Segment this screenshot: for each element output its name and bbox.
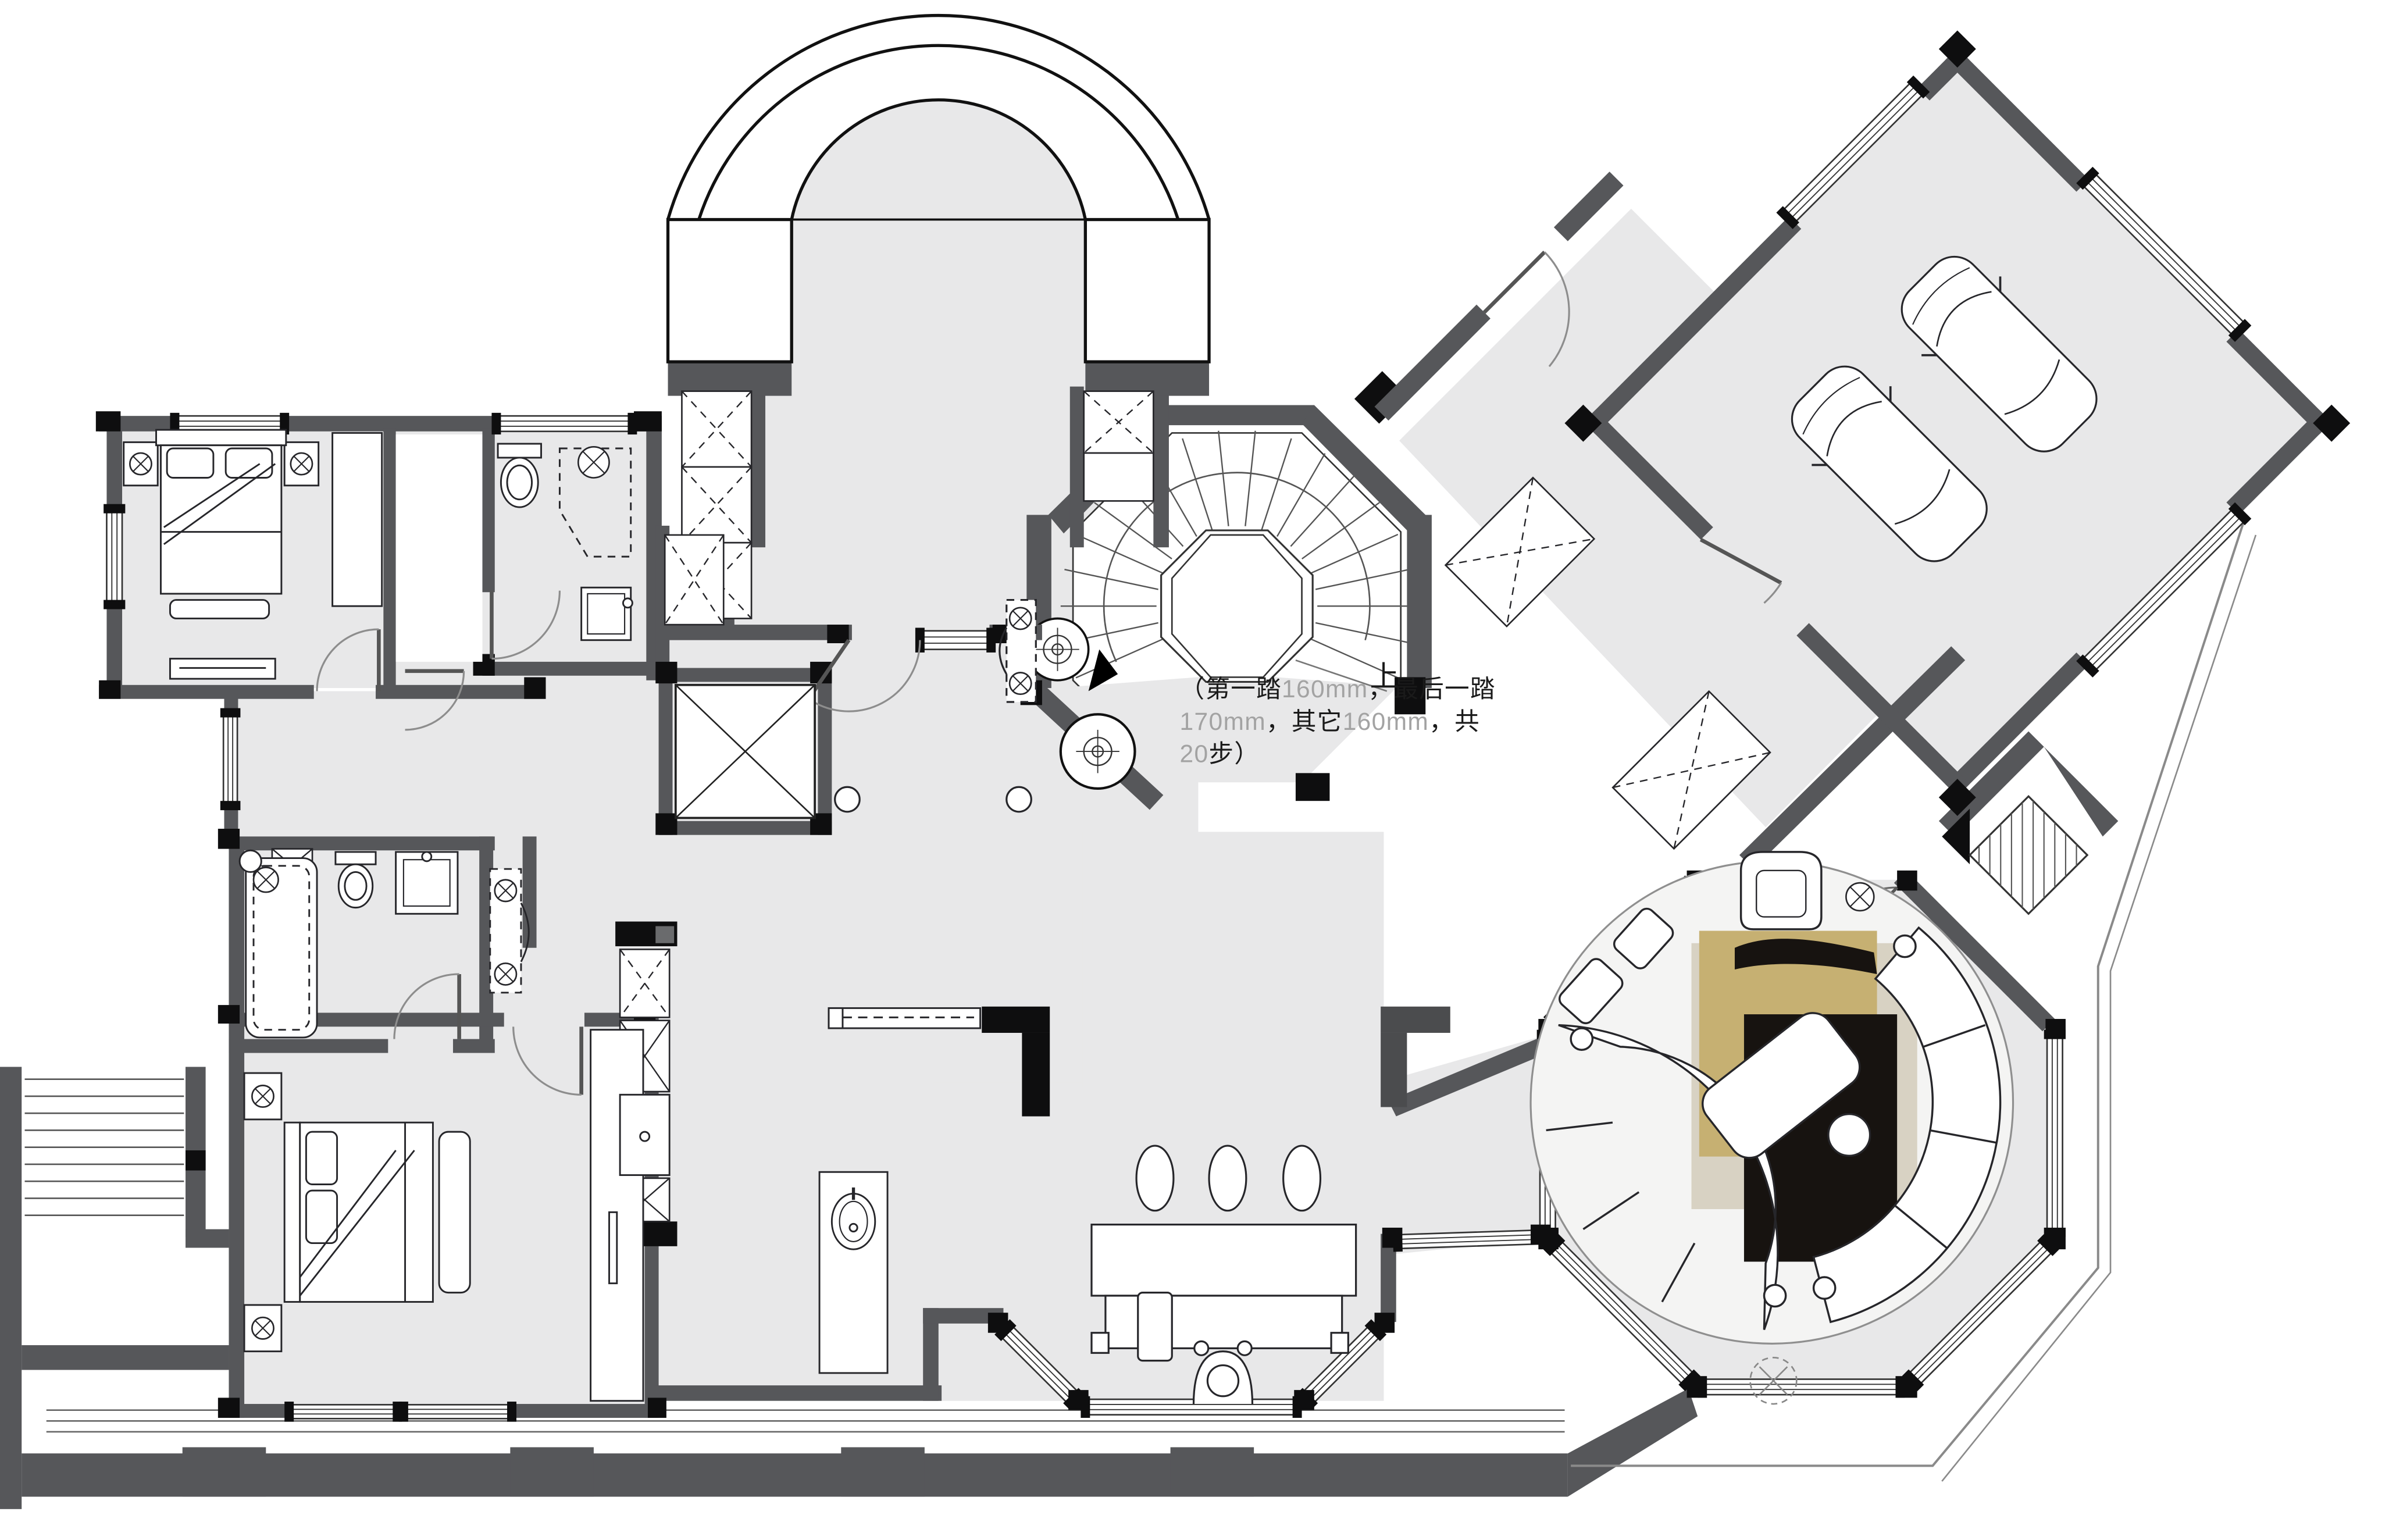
double-bed-headboard	[284, 1122, 300, 1302]
terrace-steps	[25, 1079, 184, 1215]
lamp-symbol	[495, 963, 516, 985]
pillow	[167, 448, 213, 478]
wall-post	[2045, 1229, 2066, 1250]
wardrobe	[333, 433, 382, 606]
stair-annotation: （第一踏160mm，最后一踏 170mm，其它160mm，共 20步）	[1180, 674, 1496, 771]
closet-box	[1084, 391, 1154, 453]
terrace-post	[841, 1447, 925, 1496]
wall-post	[1294, 1390, 1314, 1410]
terrace-post	[183, 1447, 266, 1496]
toilet-tank	[498, 444, 541, 458]
window	[104, 504, 125, 609]
pendant-lamp	[1283, 1146, 1321, 1211]
column	[1007, 787, 1032, 812]
closet-box	[682, 391, 751, 467]
wall-post	[2045, 1019, 2066, 1039]
toilet-tank	[336, 852, 376, 864]
faucet	[623, 598, 632, 608]
wall-post	[1531, 1225, 1551, 1245]
window	[399, 1402, 516, 1422]
closet-box	[620, 949, 669, 1017]
wall-post	[1897, 871, 1917, 891]
lamp-symbol	[495, 880, 516, 901]
window	[1698, 1376, 1905, 1398]
lamp-symbol	[1846, 883, 1874, 911]
window-jamb	[627, 413, 637, 434]
window	[1081, 1396, 1302, 1418]
lamp-symbol	[252, 1317, 273, 1339]
decor-ball	[1828, 1114, 1870, 1156]
pendant-lamp	[1136, 1146, 1174, 1211]
dressing-room-floor	[396, 434, 483, 662]
pendant-lamp	[1209, 1146, 1246, 1211]
faucet	[422, 852, 432, 861]
closet-box	[1084, 453, 1154, 501]
lamp-symbol	[1010, 608, 1031, 629]
terrace-post	[510, 1447, 594, 1496]
window-jamb	[104, 600, 125, 609]
double-bed-headboard	[156, 430, 286, 445]
window-jamb	[220, 708, 241, 718]
wall-post	[1382, 1228, 1403, 1248]
bed-bench	[170, 600, 269, 619]
window	[491, 413, 637, 434]
window	[915, 628, 996, 653]
lamp-symbol	[578, 447, 609, 477]
pillow	[226, 448, 272, 478]
window-jamb	[507, 1402, 516, 1422]
wardrobe-mirror	[609, 1212, 617, 1283]
lamp-symbol	[252, 1085, 273, 1107]
lamp-symbol	[130, 453, 151, 475]
arch-column	[1085, 220, 1209, 362]
lamp-symbol	[291, 453, 312, 475]
window-jamb	[491, 413, 501, 434]
corner-shelf	[240, 850, 261, 872]
planter	[1970, 796, 2087, 914]
armchair	[1741, 852, 1821, 929]
wall-post	[1897, 1378, 1917, 1398]
wall-post	[988, 1313, 1008, 1333]
window-jamb	[104, 504, 125, 514]
arch-column	[668, 220, 792, 362]
column	[835, 787, 860, 812]
person-figure	[1193, 1341, 1252, 1404]
pillow	[306, 1132, 337, 1184]
closet-box	[682, 467, 751, 543]
window-jamb	[284, 1402, 294, 1422]
dining-table	[1092, 1225, 1356, 1296]
terrace-post	[1171, 1447, 1254, 1496]
lamp-symbol	[1010, 673, 1031, 694]
stair-up-label: 上	[1370, 654, 1400, 696]
window	[2044, 1030, 2066, 1237]
elevator	[676, 685, 815, 818]
window-jamb	[399, 1402, 408, 1422]
window-jamb	[220, 801, 241, 810]
closet-box	[665, 535, 723, 625]
floor-plan: （第一踏160mm，最后一踏 170mm，其它160mm，共 20步） 上	[0, 0, 2389, 1540]
bed-bench	[439, 1132, 470, 1292]
arch-floor	[791, 100, 1085, 220]
window	[220, 708, 241, 810]
wall-post	[1375, 1313, 1395, 1333]
bench	[1138, 1293, 1172, 1361]
window-jamb	[986, 628, 996, 653]
window	[284, 1402, 402, 1422]
wall-post	[1068, 1390, 1089, 1410]
wall-post	[1687, 1378, 1707, 1398]
lamp-symbol	[254, 867, 279, 892]
